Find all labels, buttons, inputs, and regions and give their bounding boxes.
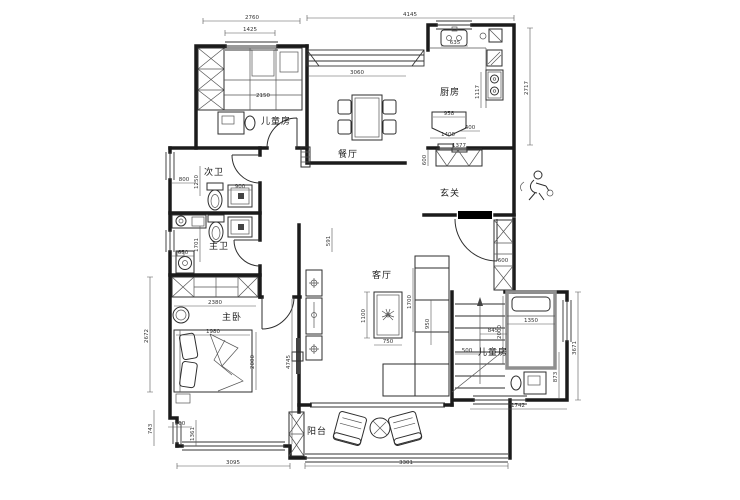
door-bath-secondary: [232, 155, 260, 183]
stove: [486, 70, 503, 100]
dim-label: 3060: [350, 70, 364, 76]
round-stool: [173, 307, 189, 323]
plant: [382, 309, 394, 320]
dim-label: 1361: [190, 427, 196, 441]
dim-label: 800: [179, 177, 190, 183]
chair: [383, 100, 396, 114]
single-bed: [507, 292, 555, 368]
dim-label: 3095: [226, 460, 240, 466]
window-kids2-right: [563, 300, 571, 342]
blanket: [210, 334, 243, 391]
wardrobe: [198, 48, 224, 110]
window-master-bottom: [182, 442, 285, 450]
wardrobe: [172, 277, 258, 297]
room-label-dining: 餐厅: [338, 148, 358, 160]
dim-label: 650: [178, 250, 189, 256]
stair-direction-arrow: [477, 297, 483, 306]
dim-label: 750: [383, 339, 394, 345]
staircase: [452, 297, 507, 392]
room-labels: 儿童房 餐厅 厨房 次卫 主卫 玄关 客厅 主卧 儿童房 阳台: [204, 86, 508, 437]
vanity-sink: [172, 215, 206, 228]
room-label-kitchen: 厨房: [440, 86, 460, 98]
dim-label: 1400: [441, 132, 455, 138]
dim-label: 2672: [144, 329, 150, 343]
dim-label: 950: [425, 318, 431, 329]
dim-label: 2380: [208, 300, 222, 306]
pillow: [512, 297, 550, 311]
dim-label: 873: [553, 371, 559, 382]
bay-window-dining: [307, 50, 424, 66]
door-bath-master: [234, 240, 260, 266]
wall-kids-top: [196, 46, 307, 148]
dim-label: 591: [326, 236, 332, 247]
dim-label: 1250: [194, 175, 200, 189]
pillow: [179, 333, 198, 360]
room-label-foyer: 玄关: [440, 187, 460, 199]
window-balcony-door: [310, 403, 445, 407]
dim-label: 900: [235, 184, 246, 190]
dim-label: 2760: [245, 15, 259, 21]
dim-label: 1701: [194, 238, 200, 252]
window-kitchen: [436, 21, 472, 29]
toilet: [208, 215, 224, 242]
wall-kitchen: [428, 25, 514, 215]
dim-label: 400: [465, 125, 476, 131]
tatami-bed: [224, 48, 302, 110]
chair: [338, 100, 351, 114]
dim-label: 1742: [511, 403, 525, 409]
double-bed: [174, 330, 252, 392]
room-label-bath-secondary: 次卫: [204, 166, 224, 178]
room-label-kids-bottom: 儿童房: [478, 346, 508, 358]
round-table: [370, 418, 390, 438]
dim-label: 2150: [256, 93, 270, 99]
dim-label: 2000: [497, 325, 503, 339]
lounge-chair: [388, 411, 423, 446]
door-entrance: [455, 219, 497, 261]
wall-master-bay: [177, 446, 305, 458]
room-label-living: 客厅: [372, 269, 392, 281]
room-label-balcony: 阳台: [307, 425, 327, 437]
person-figure: [520, 171, 553, 200]
foyer-furniture: [436, 150, 553, 290]
toilet: [207, 183, 223, 210]
shower: [228, 217, 252, 237]
dim-label: 2000: [250, 355, 256, 369]
dim-label: 2717: [524, 81, 530, 95]
dim-label: 4745: [286, 355, 292, 369]
dim-label: 1350: [524, 318, 538, 324]
pillow: [179, 361, 197, 388]
room-label-kids-top: 儿童房: [261, 115, 291, 127]
dim-label: 3671: [572, 341, 578, 355]
tv: [292, 338, 303, 374]
dim-label: 600: [422, 154, 428, 165]
tv-console: [306, 270, 322, 360]
walls: [170, 25, 567, 458]
dim-label: 560: [175, 421, 186, 427]
dim-label: 3301: [399, 460, 413, 466]
window-kids-top: [225, 42, 278, 50]
dim-label: 958: [444, 111, 455, 117]
door-master-bedroom: [262, 297, 294, 329]
dim-label: 1100: [361, 309, 367, 323]
bath-secondary-furniture: [207, 183, 252, 210]
dim-label: 743: [148, 423, 154, 434]
coffee-table: [374, 292, 402, 338]
bed-bench: [176, 394, 190, 403]
wall-entrance: [424, 215, 514, 292]
dim-label: 600: [498, 258, 509, 264]
dim-label: 500: [462, 348, 473, 354]
dining-table: [352, 95, 382, 140]
dim-label: 1425: [243, 27, 257, 33]
dim-label: 1117: [475, 85, 481, 99]
chair: [383, 120, 396, 134]
lounge-chair: [333, 411, 368, 446]
kitchen-furniture: [430, 27, 503, 136]
master-bedroom-furniture: [172, 277, 258, 403]
chair: [338, 120, 351, 134]
dim-label: 1700: [407, 295, 413, 309]
dim-label: 1377: [452, 143, 466, 149]
room-label-master: 主卧: [222, 311, 242, 323]
glass-cabinet: [487, 50, 502, 66]
dim-label: 1980: [206, 329, 220, 335]
entrance-threshold: [458, 211, 492, 219]
sofa: [383, 256, 449, 396]
room-label-bath-master: 主卫: [209, 240, 229, 252]
wall-dining: [307, 46, 405, 163]
dim-label: 4145: [403, 12, 417, 18]
floor-plan-canvas: 2760 1425 4145 3060 2717 635 1117 958 40…: [0, 0, 740, 500]
desk: [218, 112, 255, 134]
dim-label: 635: [450, 40, 461, 46]
desk: [511, 372, 546, 394]
kids-room-bottom-furniture: [507, 292, 555, 394]
cutting-board: [480, 29, 502, 42]
